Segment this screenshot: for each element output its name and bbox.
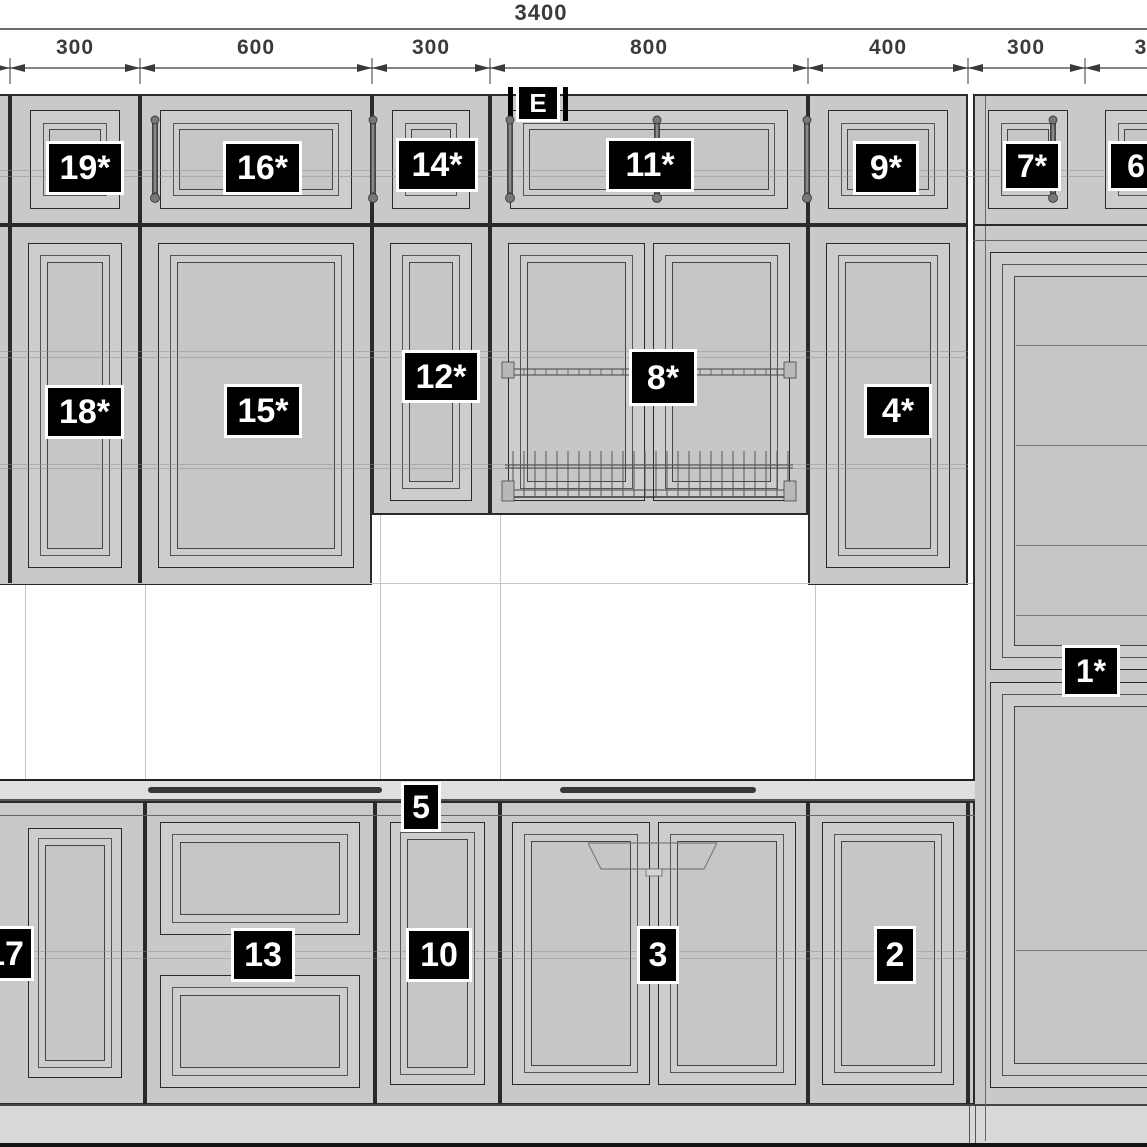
sink-bowl-outline [588, 843, 717, 869]
segment-dimension-value-3: 800 [630, 36, 668, 60]
label-elevation-e: E [516, 84, 560, 122]
segment-dimension-value-4: 400 [869, 36, 907, 60]
dim-arrow-left-6 [1085, 64, 1100, 72]
strut-top-pivot-4 [803, 116, 811, 124]
linework-overlay [0, 0, 1147, 1147]
segment-dimension-value-0: 300 [56, 36, 94, 60]
dim-arrow-left-3 [490, 64, 505, 72]
label-9: 9* [853, 141, 919, 195]
dim-arrow-left-4 [808, 64, 823, 72]
strut-bottom-pivot-1 [369, 194, 378, 203]
dim-arrow-left-0 [10, 64, 25, 72]
strut-top-pivot-0 [151, 116, 159, 124]
strut-bottom-pivot-0 [151, 194, 160, 203]
dim-arrow-left-2 [372, 64, 387, 72]
strut-top-pivot-1 [369, 116, 377, 124]
segment-dimension-value-5: 300 [1007, 36, 1045, 60]
segment-dimension-value-1: 600 [237, 36, 275, 60]
label-12: 12* [402, 350, 480, 403]
label-6: 6 [1108, 141, 1147, 191]
label-3: 3 [637, 926, 679, 984]
plate-rack-bracket-0 [502, 481, 514, 501]
dim-arrow-right-2 [357, 64, 372, 72]
dim-arrow-left-5 [968, 64, 983, 72]
label-16: 16* [223, 141, 302, 195]
segment-dimension-value-2: 300 [412, 36, 450, 60]
label-2: 2 [874, 926, 916, 984]
dim-arrow-left-1 [140, 64, 155, 72]
dim-arrow-right-6 [1070, 64, 1085, 72]
strut-bottom-pivot-5 [1049, 194, 1058, 203]
dim-arrow-right-3 [475, 64, 490, 72]
label-17: 17 [0, 926, 34, 981]
label-15: 15* [224, 384, 302, 438]
sink-drain-tab [646, 869, 662, 876]
plate-rack-bracket-1 [784, 481, 796, 501]
label-18: 18* [45, 385, 124, 439]
label-8: 8* [629, 349, 697, 406]
strut-top-pivot-5 [1049, 116, 1057, 124]
label-1: 1* [1062, 645, 1120, 697]
label-10: 10 [406, 928, 472, 982]
segment-dimension-value-6: 3 [1135, 36, 1147, 60]
plate-rack-bracket-2 [502, 362, 514, 378]
plate-rack-bracket-3 [784, 362, 796, 378]
dim-arrow-right-5 [953, 64, 968, 72]
strut-bottom-pivot-2 [506, 194, 515, 203]
strut-bottom-pivot-3 [653, 194, 662, 203]
label-13: 13 [231, 928, 295, 982]
label-7: 7* [1003, 141, 1061, 191]
kitchen-elevation-drawing: E19*16*14*11*9*7*618*15*12*8*4*1*5171310… [0, 0, 1147, 1147]
strut-top-pivot-3 [653, 116, 661, 124]
label-4: 4* [864, 384, 932, 438]
strut-top-pivot-2 [506, 116, 514, 124]
dim-arrow-right-4 [793, 64, 808, 72]
strut-bottom-pivot-4 [803, 194, 812, 203]
label-5: 5 [401, 782, 441, 832]
dim-arrow-right-1 [125, 64, 140, 72]
dim-arrow-right-0 [0, 64, 10, 72]
overall-dimension-value: 3400 [515, 0, 568, 26]
label-14: 14* [396, 138, 478, 192]
label-19: 19* [46, 141, 124, 195]
label-11: 11* [606, 138, 694, 192]
